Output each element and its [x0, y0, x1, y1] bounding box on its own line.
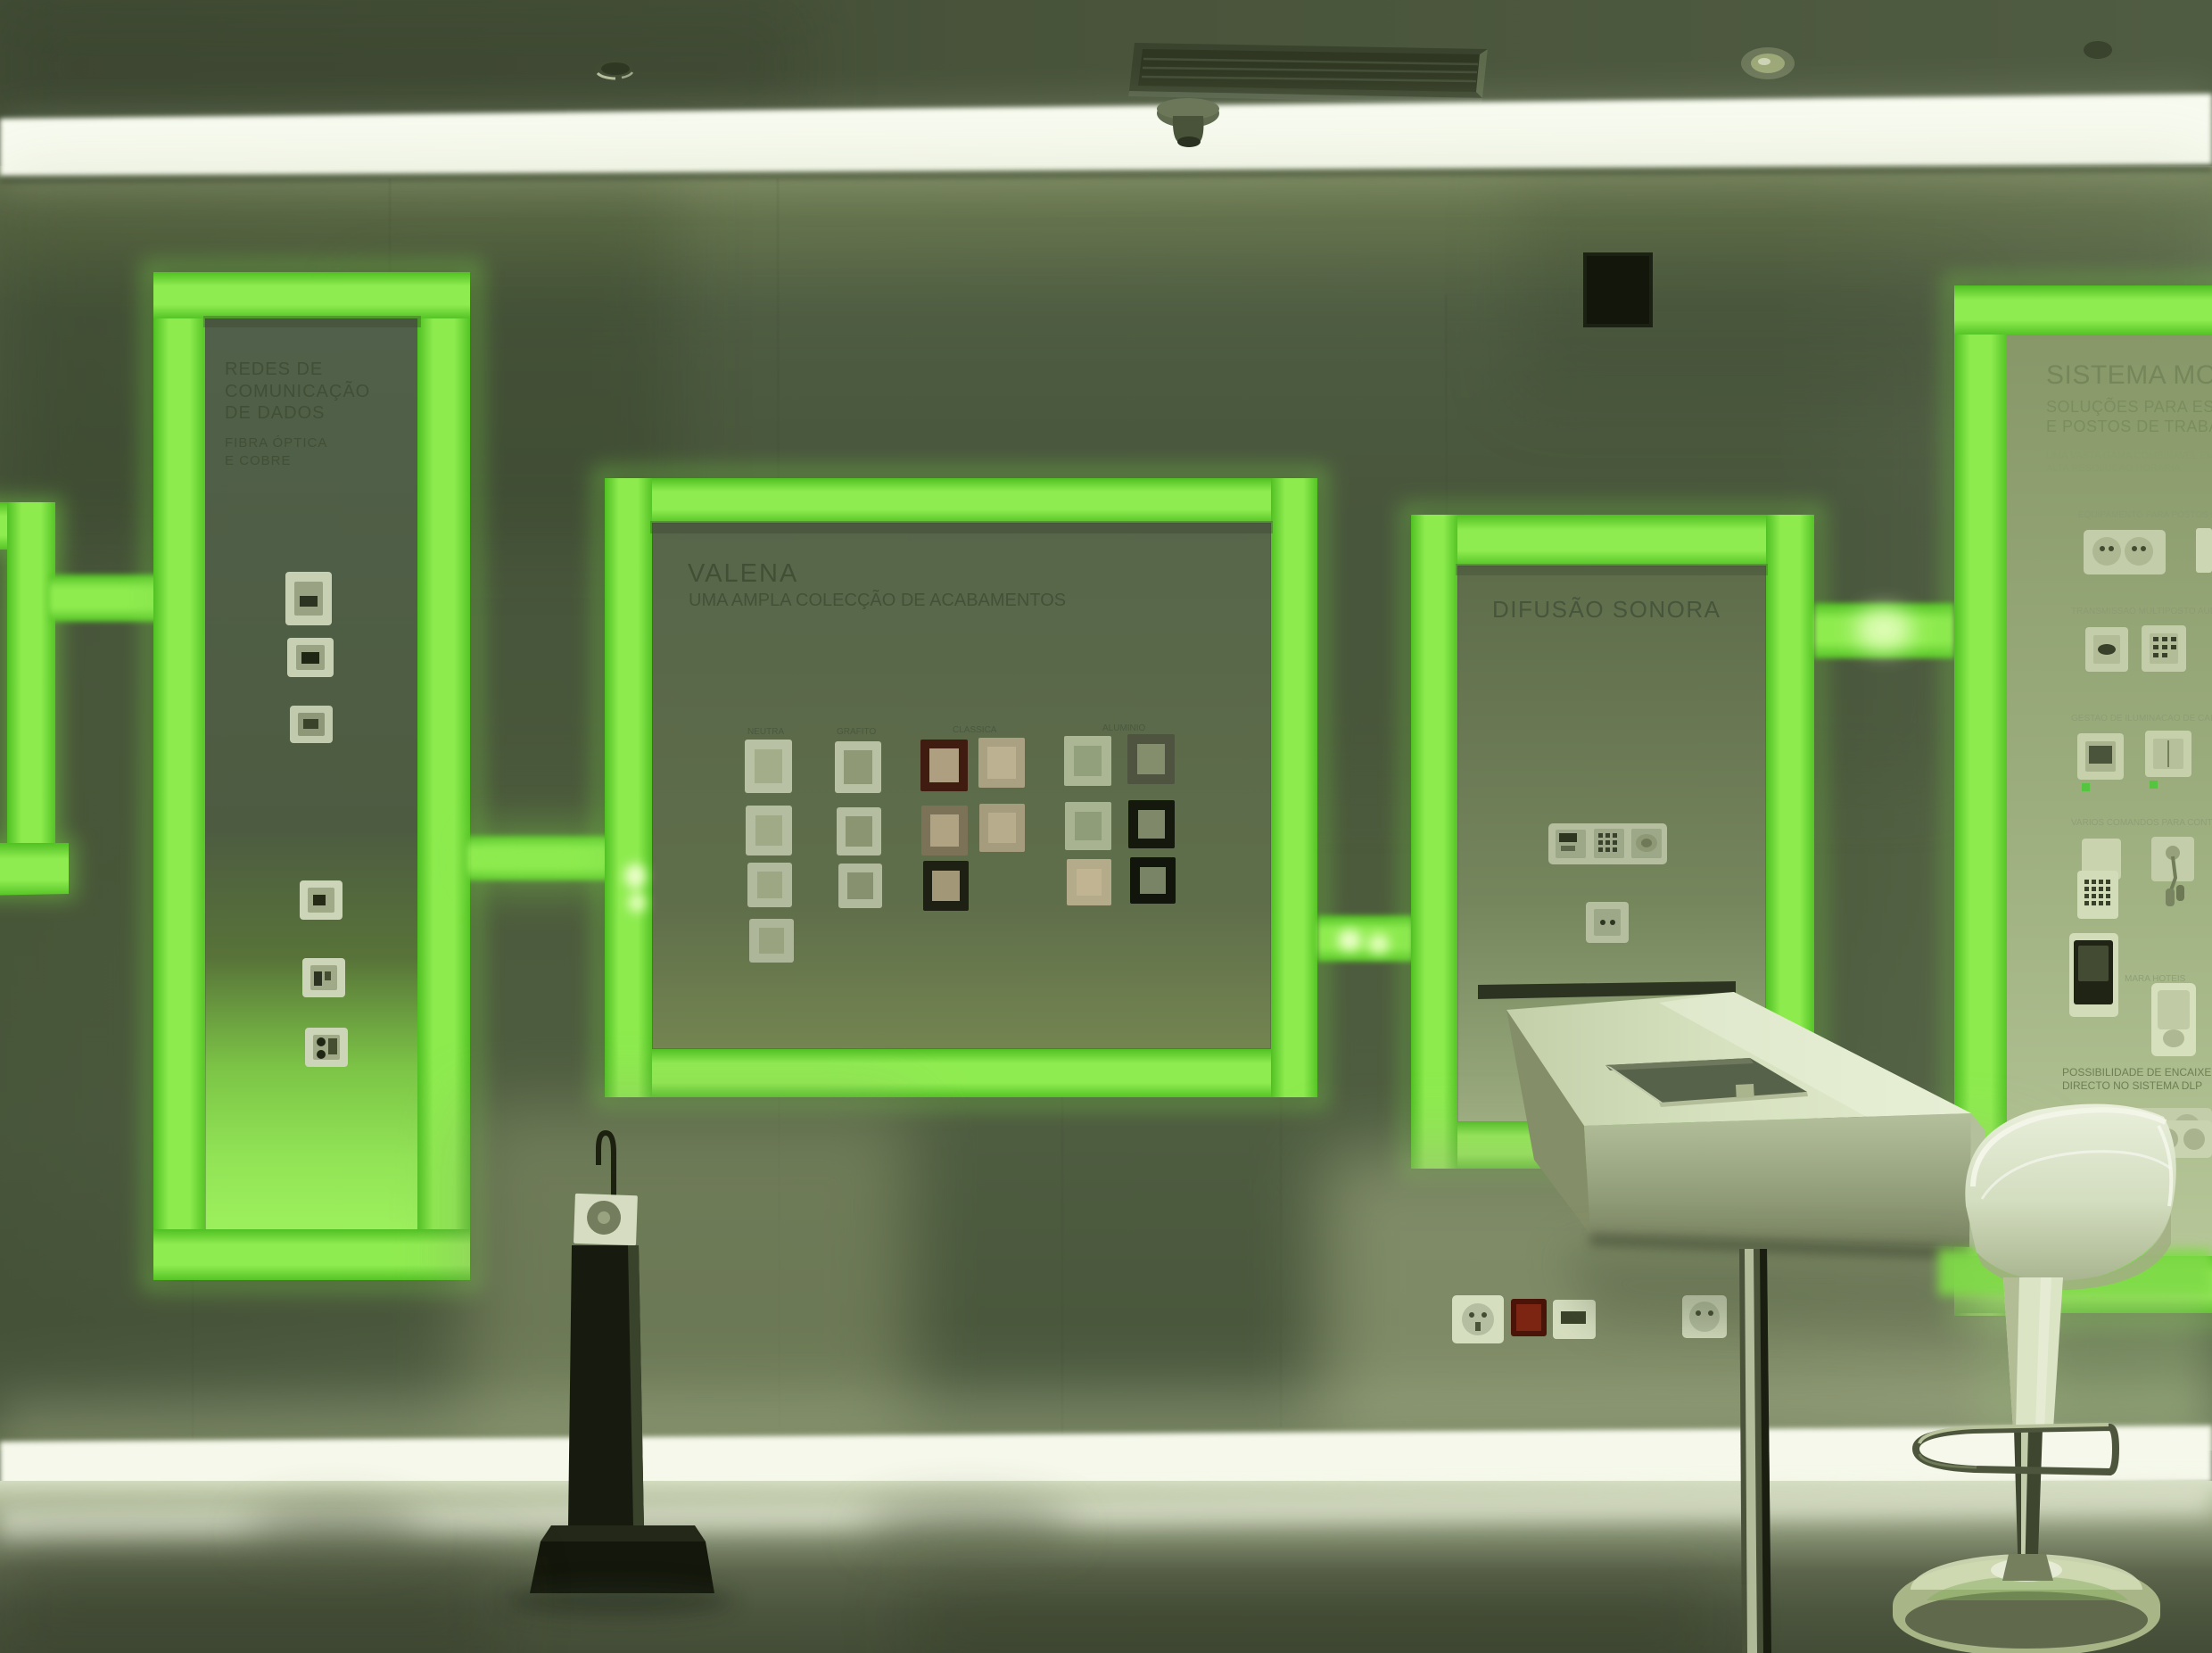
svg-text:E POSTOS DE TRABALHO: E POSTOS DE TRABALHO [2046, 417, 2212, 435]
svg-text:E COBRE: E COBRE [225, 453, 292, 468]
svg-text:EQUIPAMENTO PARA POSTOS DE TR: EQUIPAMENTO PARA POSTOS DE TR [2078, 510, 2212, 520]
svg-text:ALTA RESOLUCAO HORARIA: ALTA RESOLUCAO HORARIA [2046, 463, 2181, 474]
svg-text:FIBRA ÓPTICA: FIBRA ÓPTICA [225, 435, 327, 450]
svg-text:MARA HOTEIS: MARA HOTEIS [2125, 974, 2186, 984]
svg-text:NEUTRA: NEUTRA [747, 727, 784, 737]
svg-text:UMA AMPLA COLECÇÃO DE ACABAMEN: UMA AMPLA COLECÇÃO DE ACABAMENTOS [689, 589, 1066, 610]
svg-text:CLASSICA: CLASSICA [953, 725, 997, 735]
svg-text:DE DADOS: DE DADOS [225, 403, 325, 423]
svg-text:POSSIBILIDADE DE ENCAIXE: POSSIBILIDADE DE ENCAIXE [2062, 1066, 2211, 1079]
svg-text:SISTEMA MOSAIC: SISTEMA MOSAIC [2046, 360, 2212, 390]
svg-text:GESTAO DE ILUMINACAO DE CADA: GESTAO DE ILUMINACAO DE CADA DI [2071, 714, 2212, 723]
svg-text:SOLUÇÕES PARA ESCRITÓRIOS: SOLUÇÕES PARA ESCRITÓRIOS [2046, 397, 2212, 416]
svg-text:GRAFITO: GRAFITO [837, 727, 876, 737]
svg-text:DIRECTO NO SISTEMA DLP: DIRECTO NO SISTEMA DLP [2062, 1079, 2202, 1092]
svg-text:VARIOS COMANDOS PARA CONTROLE: VARIOS COMANDOS PARA CONTROLE D [2071, 818, 2212, 828]
svg-text:REDES DE: REDES DE [225, 360, 323, 379]
svg-text:VALENA: VALENA [688, 559, 798, 588]
svg-text:DIFUSÃO SONORA: DIFUSÃO SONORA [1492, 596, 1721, 623]
svg-text:ALUMINIO: ALUMINIO [1102, 723, 1146, 733]
svg-text:UMA VASTA GAMA COMBINAVEL EM Q: UMA VASTA GAMA COMBINAVEL EM QU [2046, 450, 2212, 461]
svg-text:COMUNICAÇÃO: COMUNICAÇÃO [225, 380, 370, 401]
svg-text:TRANSMISSAO MULTIPOSTO AUDIO: TRANSMISSAO MULTIPOSTO AUDIO D [2071, 607, 2212, 616]
